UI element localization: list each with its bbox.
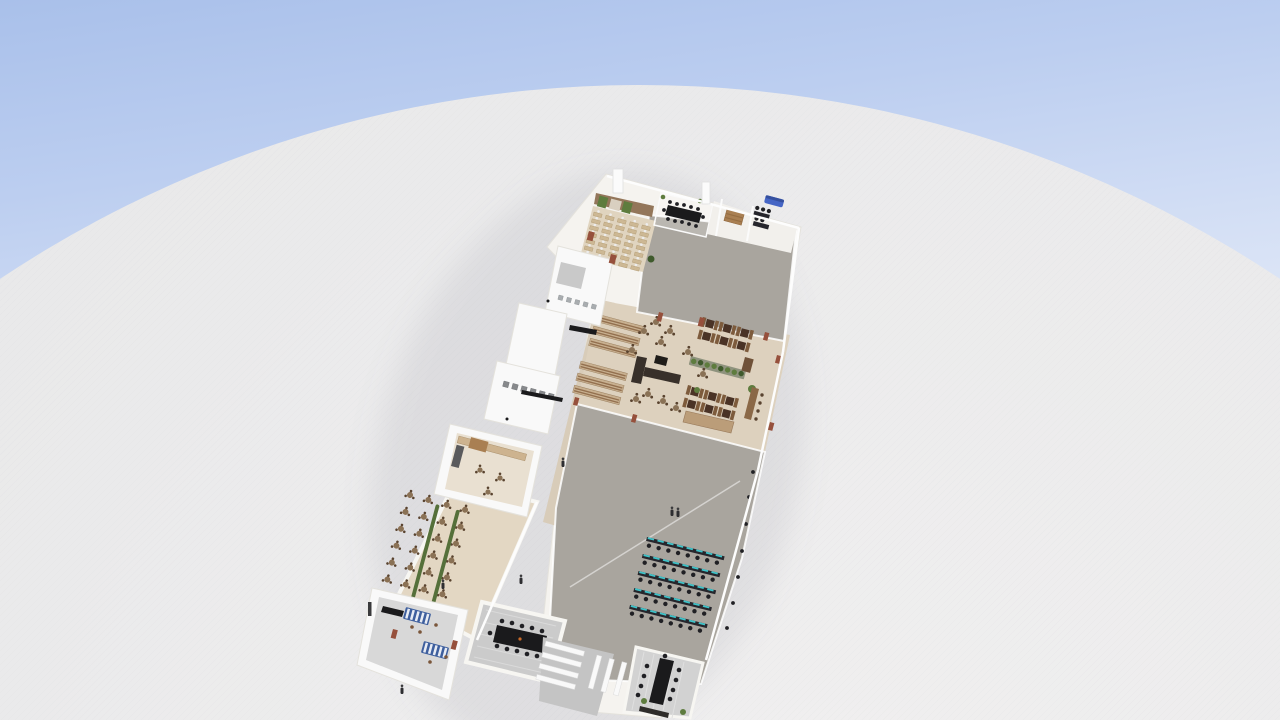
- coat-rack[interactable]: [368, 602, 372, 616]
- conf-a-centerpiece: [518, 637, 521, 640]
- app-viewport[interactable]: [0, 0, 1280, 720]
- floorplan-3d-render[interactable]: [0, 0, 1280, 720]
- classroom-plant[interactable]: [648, 256, 655, 263]
